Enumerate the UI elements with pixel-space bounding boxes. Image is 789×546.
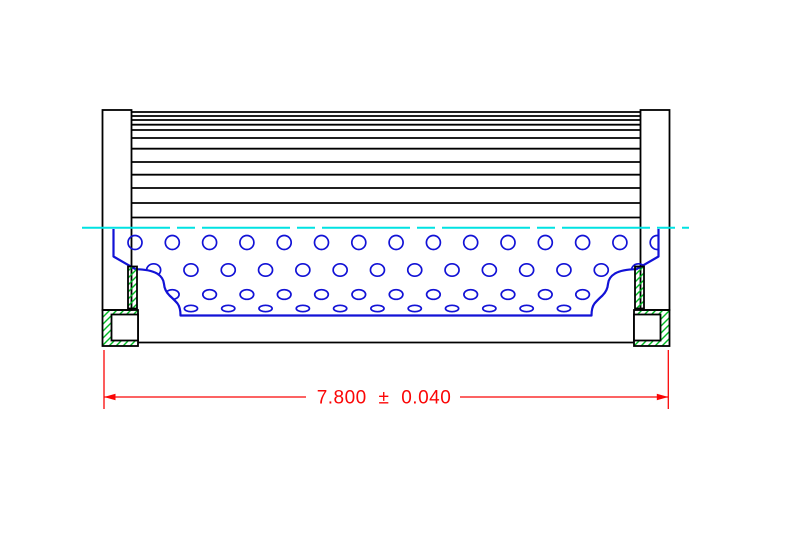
drawing-canvas: 7.800 ± 0.040: [0, 0, 789, 546]
tube-profile-outline: [114, 229, 659, 316]
dimension-text: 7.800 ± 0.040: [317, 388, 452, 409]
gasket-box-lower-left-core: [112, 315, 139, 341]
center-tube: [114, 229, 665, 316]
perforation-holes: [128, 236, 664, 312]
pleat-band: [132, 112, 641, 218]
arrowhead-left: [104, 394, 116, 400]
width-dimension: 7.800 ± 0.040: [104, 350, 668, 409]
gasket-box-lower-right-core: [634, 315, 661, 341]
gasket-strip-upper-left: [128, 267, 137, 309]
filter-cross-section-drawing: 7.800 ± 0.040: [0, 0, 789, 546]
gasket-strip-upper-right: [635, 267, 644, 309]
arrowhead-right: [657, 394, 669, 400]
